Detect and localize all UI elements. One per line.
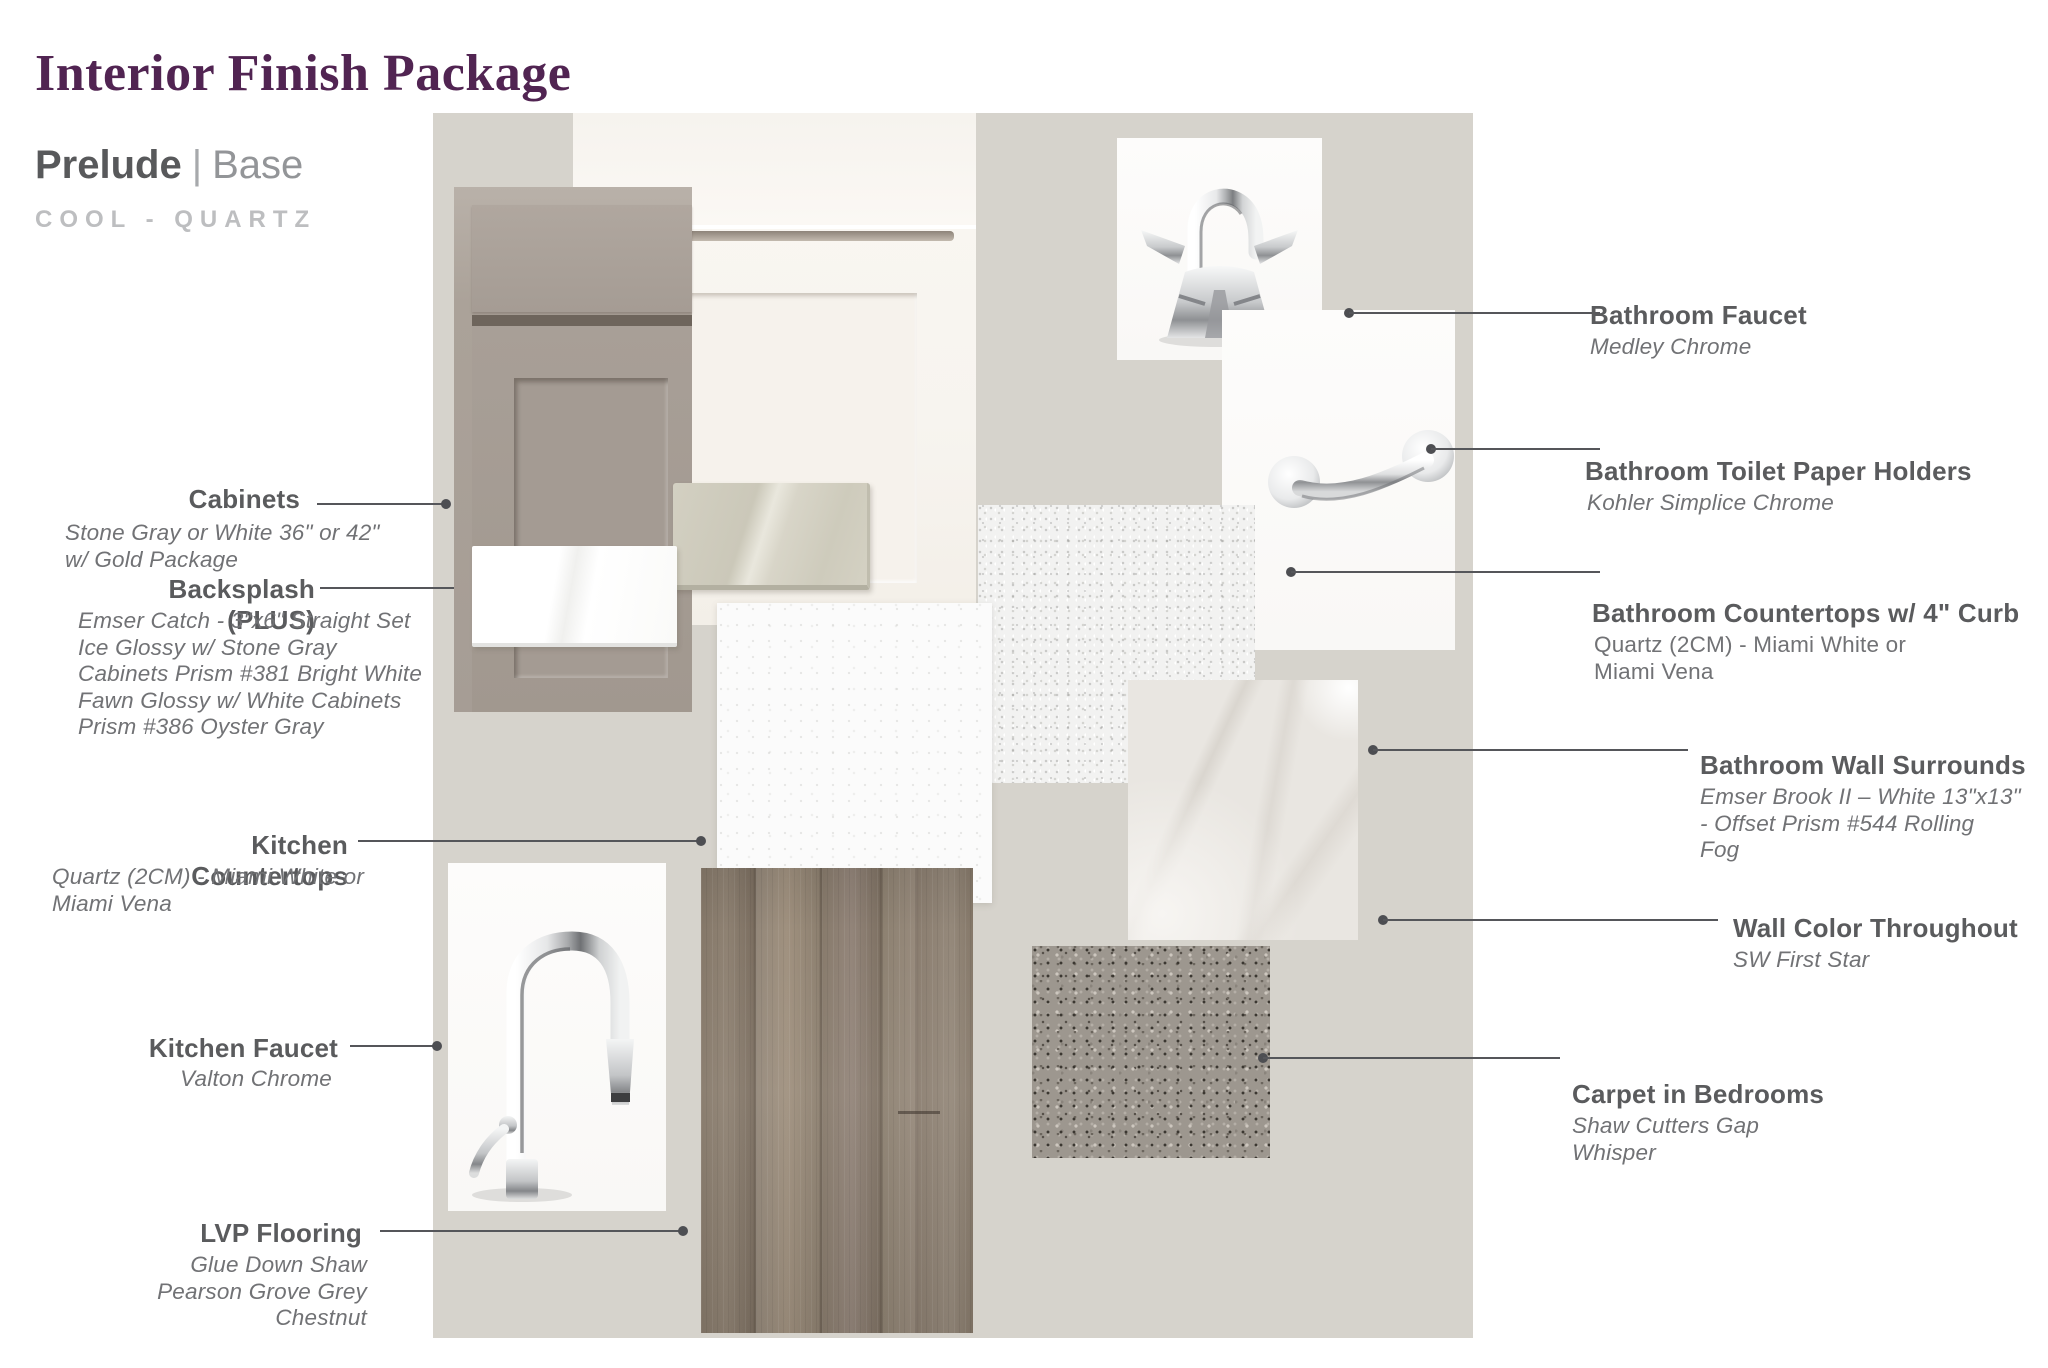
kitchen-faucet-icon	[448, 863, 666, 1211]
label-bathroom-faucet: Bathroom Faucet	[1590, 300, 1807, 331]
connector-dot-lvp-flooring	[678, 1226, 688, 1236]
connector-line-wall-surrounds	[1373, 749, 1688, 751]
label-kitchen-countertops-detail: Quartz (2CM) - Miami White or Miami Vena	[52, 864, 364, 917]
connector-line-kitchen-faucet	[350, 1045, 436, 1047]
connector-dot-kitchen-faucet	[432, 1041, 442, 1051]
toilet-paper-holder-image	[1222, 310, 1455, 650]
label-wall-color: Wall Color Throughout	[1733, 913, 2018, 944]
connector-line-bathroom-countertops	[1291, 571, 1600, 573]
cabinet-door	[472, 326, 692, 712]
connector-line-bathroom-faucet	[1349, 312, 1600, 314]
backsplash-tile-ice-glossy	[472, 546, 677, 647]
kitchen-countertop-swatch	[717, 603, 992, 903]
toilet-paper-holder-icon	[1222, 310, 1455, 650]
series-divider: |	[182, 143, 212, 187]
connector-dot-kitchen-countertops	[696, 836, 706, 846]
label-wall-surrounds: Bathroom Wall Surrounds	[1700, 750, 2026, 781]
connector-line-wall-color	[1383, 919, 1718, 921]
series-tier: Base	[212, 143, 303, 187]
connector-dot-cabinets	[441, 499, 451, 509]
backsplash-tile-fawn-glossy	[673, 483, 870, 590]
label-cabinets-detail: Stone Gray or White 36" or 42" w/ Gold P…	[65, 520, 380, 573]
page-title: Interior Finish Package	[35, 44, 571, 103]
label-lvp-flooring-detail: Glue Down Shaw Pearson Grove Grey Chestn…	[115, 1252, 367, 1332]
connector-line-lvp-flooring	[380, 1230, 682, 1232]
interior-finish-package-sheet: Interior Finish Package Prelude|Base COO…	[0, 0, 2048, 1368]
label-kitchen-faucet: Kitchen Faucet	[98, 1033, 338, 1064]
label-backsplash-detail: Emser Catch - 3"x6" Straight Set Ice Glo…	[78, 608, 422, 741]
connector-line-backsplash	[320, 587, 454, 589]
connector-line-cabinets	[317, 503, 445, 505]
label-wall-color-detail: SW First Star	[1733, 947, 1869, 974]
carpet-swatch	[1032, 946, 1270, 1158]
label-kitchen-faucet-detail: Valton Chrome	[80, 1066, 332, 1093]
label-cabinets: Cabinets	[60, 484, 300, 515]
connector-line-kitchen-countertops	[358, 840, 700, 842]
series-line: Prelude|Base	[35, 143, 303, 188]
kitchen-faucet-image	[448, 863, 666, 1211]
connector-line-tp-holders	[1431, 448, 1600, 450]
cabinet-drawer-gap	[472, 315, 692, 326]
connector-line-carpet	[1263, 1057, 1560, 1059]
label-tp-holders: Bathroom Toilet Paper Holders	[1585, 456, 1972, 487]
label-bathroom-countertops-detail: Quartz (2CM) - Miami White or Miami Vena	[1594, 632, 1906, 685]
label-carpet: Carpet in Bedrooms	[1572, 1079, 1824, 1110]
lvp-flooring-swatch	[701, 868, 973, 1333]
wall-surround-tile-swatch	[1128, 680, 1358, 940]
label-lvp-flooring: LVP Flooring	[122, 1218, 362, 1249]
series-name: Prelude	[35, 143, 182, 187]
cabinet-drawer-front	[472, 205, 692, 312]
label-tp-holders-detail: Kohler Simplice Chrome	[1587, 490, 1834, 517]
palette-name: COOL - QUARTZ	[35, 206, 316, 234]
label-bathroom-faucet-detail: Medley Chrome	[1590, 334, 1751, 361]
label-bathroom-countertops: Bathroom Countertops w/ 4" Curb	[1592, 598, 2019, 629]
label-wall-surrounds-detail: Emser Brook II – White 13"x13" - Offset …	[1700, 784, 2021, 864]
label-carpet-detail: Shaw Cutters Gap Whisper	[1572, 1113, 1759, 1166]
